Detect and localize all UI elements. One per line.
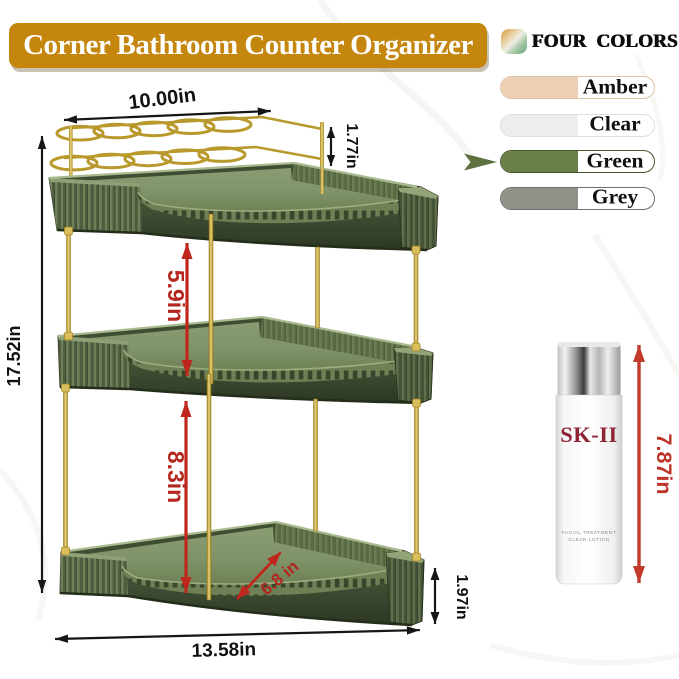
svg-text:7.87in: 7.87in xyxy=(652,434,676,495)
svg-text:1.97in: 1.97in xyxy=(453,574,470,619)
svg-text:SK-II: SK-II xyxy=(560,422,618,447)
svg-text:10.00in: 10.00in xyxy=(127,84,197,114)
svg-text:FACIAL TREATMENT: FACIAL TREATMENT xyxy=(562,530,617,536)
svg-text:13.58in: 13.58in xyxy=(191,639,256,662)
svg-text:8.3in: 8.3in xyxy=(163,451,189,503)
svg-text:17.52in: 17.52in xyxy=(4,325,24,386)
svg-text:5.9in: 5.9in xyxy=(163,270,189,322)
svg-text:1.77in: 1.77in xyxy=(343,123,360,168)
svg-text:CLEAR LOTION: CLEAR LOTION xyxy=(568,537,609,543)
